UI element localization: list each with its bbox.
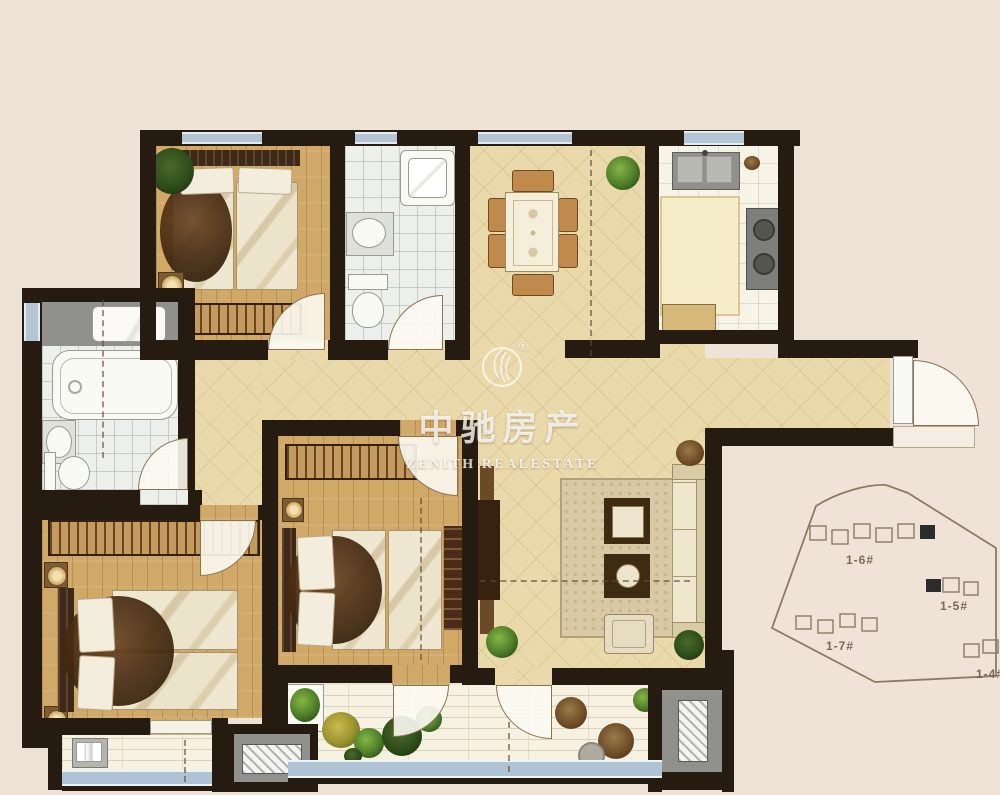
desk-middle	[444, 526, 462, 630]
wall-topleft-west	[140, 130, 156, 360]
wall-master-north-2	[258, 505, 278, 520]
dining-chair-right1	[558, 198, 578, 232]
balcony-planter-plant	[290, 688, 320, 722]
plant-living-tv	[486, 626, 518, 658]
wall-living-south-2	[552, 668, 652, 685]
wall-midbed-south-2	[450, 665, 462, 683]
dining-table-decor	[513, 200, 553, 266]
balcony-master-edge	[62, 786, 212, 791]
ensuite-toilet-tank	[44, 452, 56, 494]
site-plan-boundary	[772, 485, 996, 682]
watermark-registered: ®	[519, 341, 527, 353]
kitchen-faucet	[702, 150, 708, 156]
wall-midbed-south-1	[262, 665, 392, 683]
watermark-logo-icon: ®	[479, 340, 527, 392]
doorway-living-balcony	[495, 668, 552, 685]
building-cluster-1	[810, 524, 935, 544]
ensuite-bathtub-drain	[68, 380, 82, 394]
building-cluster-2	[926, 578, 978, 595]
dashed-line-dining	[590, 150, 592, 356]
ac-unit-right	[678, 700, 708, 762]
wall-entry-south	[718, 428, 918, 446]
watermark-title: 中驰房产	[395, 400, 610, 451]
bed-middle-duvet-right	[388, 530, 442, 650]
ac-right-frame-right	[722, 650, 734, 792]
wall-corridor-north-2	[328, 340, 388, 360]
coffee-table-2-bowl	[616, 564, 640, 588]
wall-corridor-north-1	[140, 340, 268, 360]
wall-midbed-west	[262, 420, 278, 682]
wall-master-balcony-west	[48, 735, 62, 790]
site-plan: 1-6# 1-5# 1-7# 1-4#	[768, 478, 1000, 713]
balcony-south-edge	[288, 778, 662, 784]
kitchen-cabinet-low	[662, 304, 716, 332]
dining-chair-bottom	[512, 274, 554, 296]
wall-ensuite-south-2	[188, 490, 202, 505]
wall-ensuite-north	[22, 288, 195, 302]
entry-door-leaf	[893, 356, 913, 424]
dining-chair-top	[512, 170, 554, 192]
wall-midbed-north-1	[262, 420, 400, 436]
armchair-living-cushion	[612, 620, 646, 648]
building-label-4: 1-4#	[976, 667, 1000, 681]
plant-topleft-corner	[150, 148, 194, 194]
wall-living-south-1	[462, 668, 495, 685]
bed-middle-pillow-bottom	[297, 591, 336, 647]
plant-sofa-top	[676, 440, 704, 466]
bed-master-pillow-top	[77, 597, 116, 653]
toilet-main-bowl	[352, 292, 384, 328]
building-label-2: 1-5#	[940, 599, 968, 613]
balcony-south-glazing	[288, 760, 662, 778]
wall-bed-bath	[330, 146, 345, 360]
bed-topleft-medallion	[160, 180, 232, 282]
building-cluster-4	[964, 640, 998, 657]
entry-door-swing	[913, 360, 979, 426]
dashed-line-balcony	[508, 722, 510, 772]
building-highlight-1	[920, 525, 935, 539]
kitchen-island	[660, 196, 740, 316]
wall-dining-kitchen	[645, 130, 659, 342]
sofa-seats	[672, 478, 698, 624]
ac-right-frame-top	[648, 668, 732, 690]
plant-dining	[606, 156, 640, 190]
wall-ensuite-south-1	[22, 490, 140, 505]
entry-porch-step	[893, 426, 975, 448]
window-ensuite	[24, 303, 40, 341]
window-dining	[478, 132, 572, 144]
window-topleft-bedroom	[182, 132, 262, 144]
dashed-line-master-balcony	[184, 740, 186, 782]
washer-master-balcony-top	[76, 742, 102, 762]
plant-sofa-bottom	[674, 630, 704, 660]
wall-kitchen-east	[778, 130, 794, 358]
building-label-1: 1-6#	[846, 553, 874, 567]
lamp-middle	[285, 501, 303, 519]
doorway-ensuite	[140, 490, 188, 505]
passage-floor	[195, 358, 262, 520]
watermark-subtitle: ZENITH REALESTATE	[395, 457, 610, 473]
wall-master-north-1	[22, 505, 200, 520]
sink-main-basin	[352, 218, 386, 248]
wall-living-east	[705, 428, 722, 698]
window-bathroom-main	[355, 132, 397, 144]
dashed-line-living	[480, 580, 690, 582]
stove-burner-2	[753, 253, 775, 275]
wall-bath-dining	[455, 130, 470, 360]
toilet-main-tank	[348, 274, 388, 290]
kitchen-sink-basin1	[677, 156, 703, 183]
master-balcony-door-leaf	[150, 720, 212, 734]
bed-topleft-pillow-right	[238, 167, 293, 195]
wall-balcony-divider-1	[212, 718, 228, 792]
dashed-line-ensuite	[102, 300, 104, 458]
bed-topleft-duvet-right	[236, 182, 298, 290]
ensuite-toilet-bowl	[58, 456, 90, 490]
dashed-line-middle-bedroom	[420, 498, 422, 660]
dining-chair-right2	[558, 234, 578, 268]
wall-kitchen-south	[645, 330, 792, 344]
lamp-master-top	[47, 566, 67, 586]
tv-cabinet	[478, 500, 500, 600]
coffee-table-1-top	[612, 506, 644, 538]
watermark: ® 中驰房产 ZENITH REALESTATE	[395, 340, 610, 473]
bed-middle-pillow-top	[297, 535, 336, 591]
window-kitchen	[684, 131, 744, 145]
stove-burner-1	[753, 219, 775, 241]
doorway-middle-balcony	[392, 665, 450, 685]
kitchen-sink-basin2	[706, 156, 732, 183]
doorway-master	[200, 505, 258, 520]
building-label-3: 1-7#	[826, 639, 854, 653]
building-highlight-2	[926, 579, 941, 592]
shower-main-inner	[408, 158, 447, 198]
doorway-kitchen	[660, 344, 705, 358]
balcony-master-glazing	[62, 770, 212, 786]
balcony-chair-1	[555, 697, 587, 729]
building-cluster-3	[796, 614, 877, 633]
bed-master-pillow-bottom	[77, 655, 116, 711]
floor-plan: ® 中驰房产 ZENITH REALESTATE 1-6# 1-5# 1-7#	[0, 0, 1000, 795]
kitchen-small-items	[744, 156, 760, 170]
